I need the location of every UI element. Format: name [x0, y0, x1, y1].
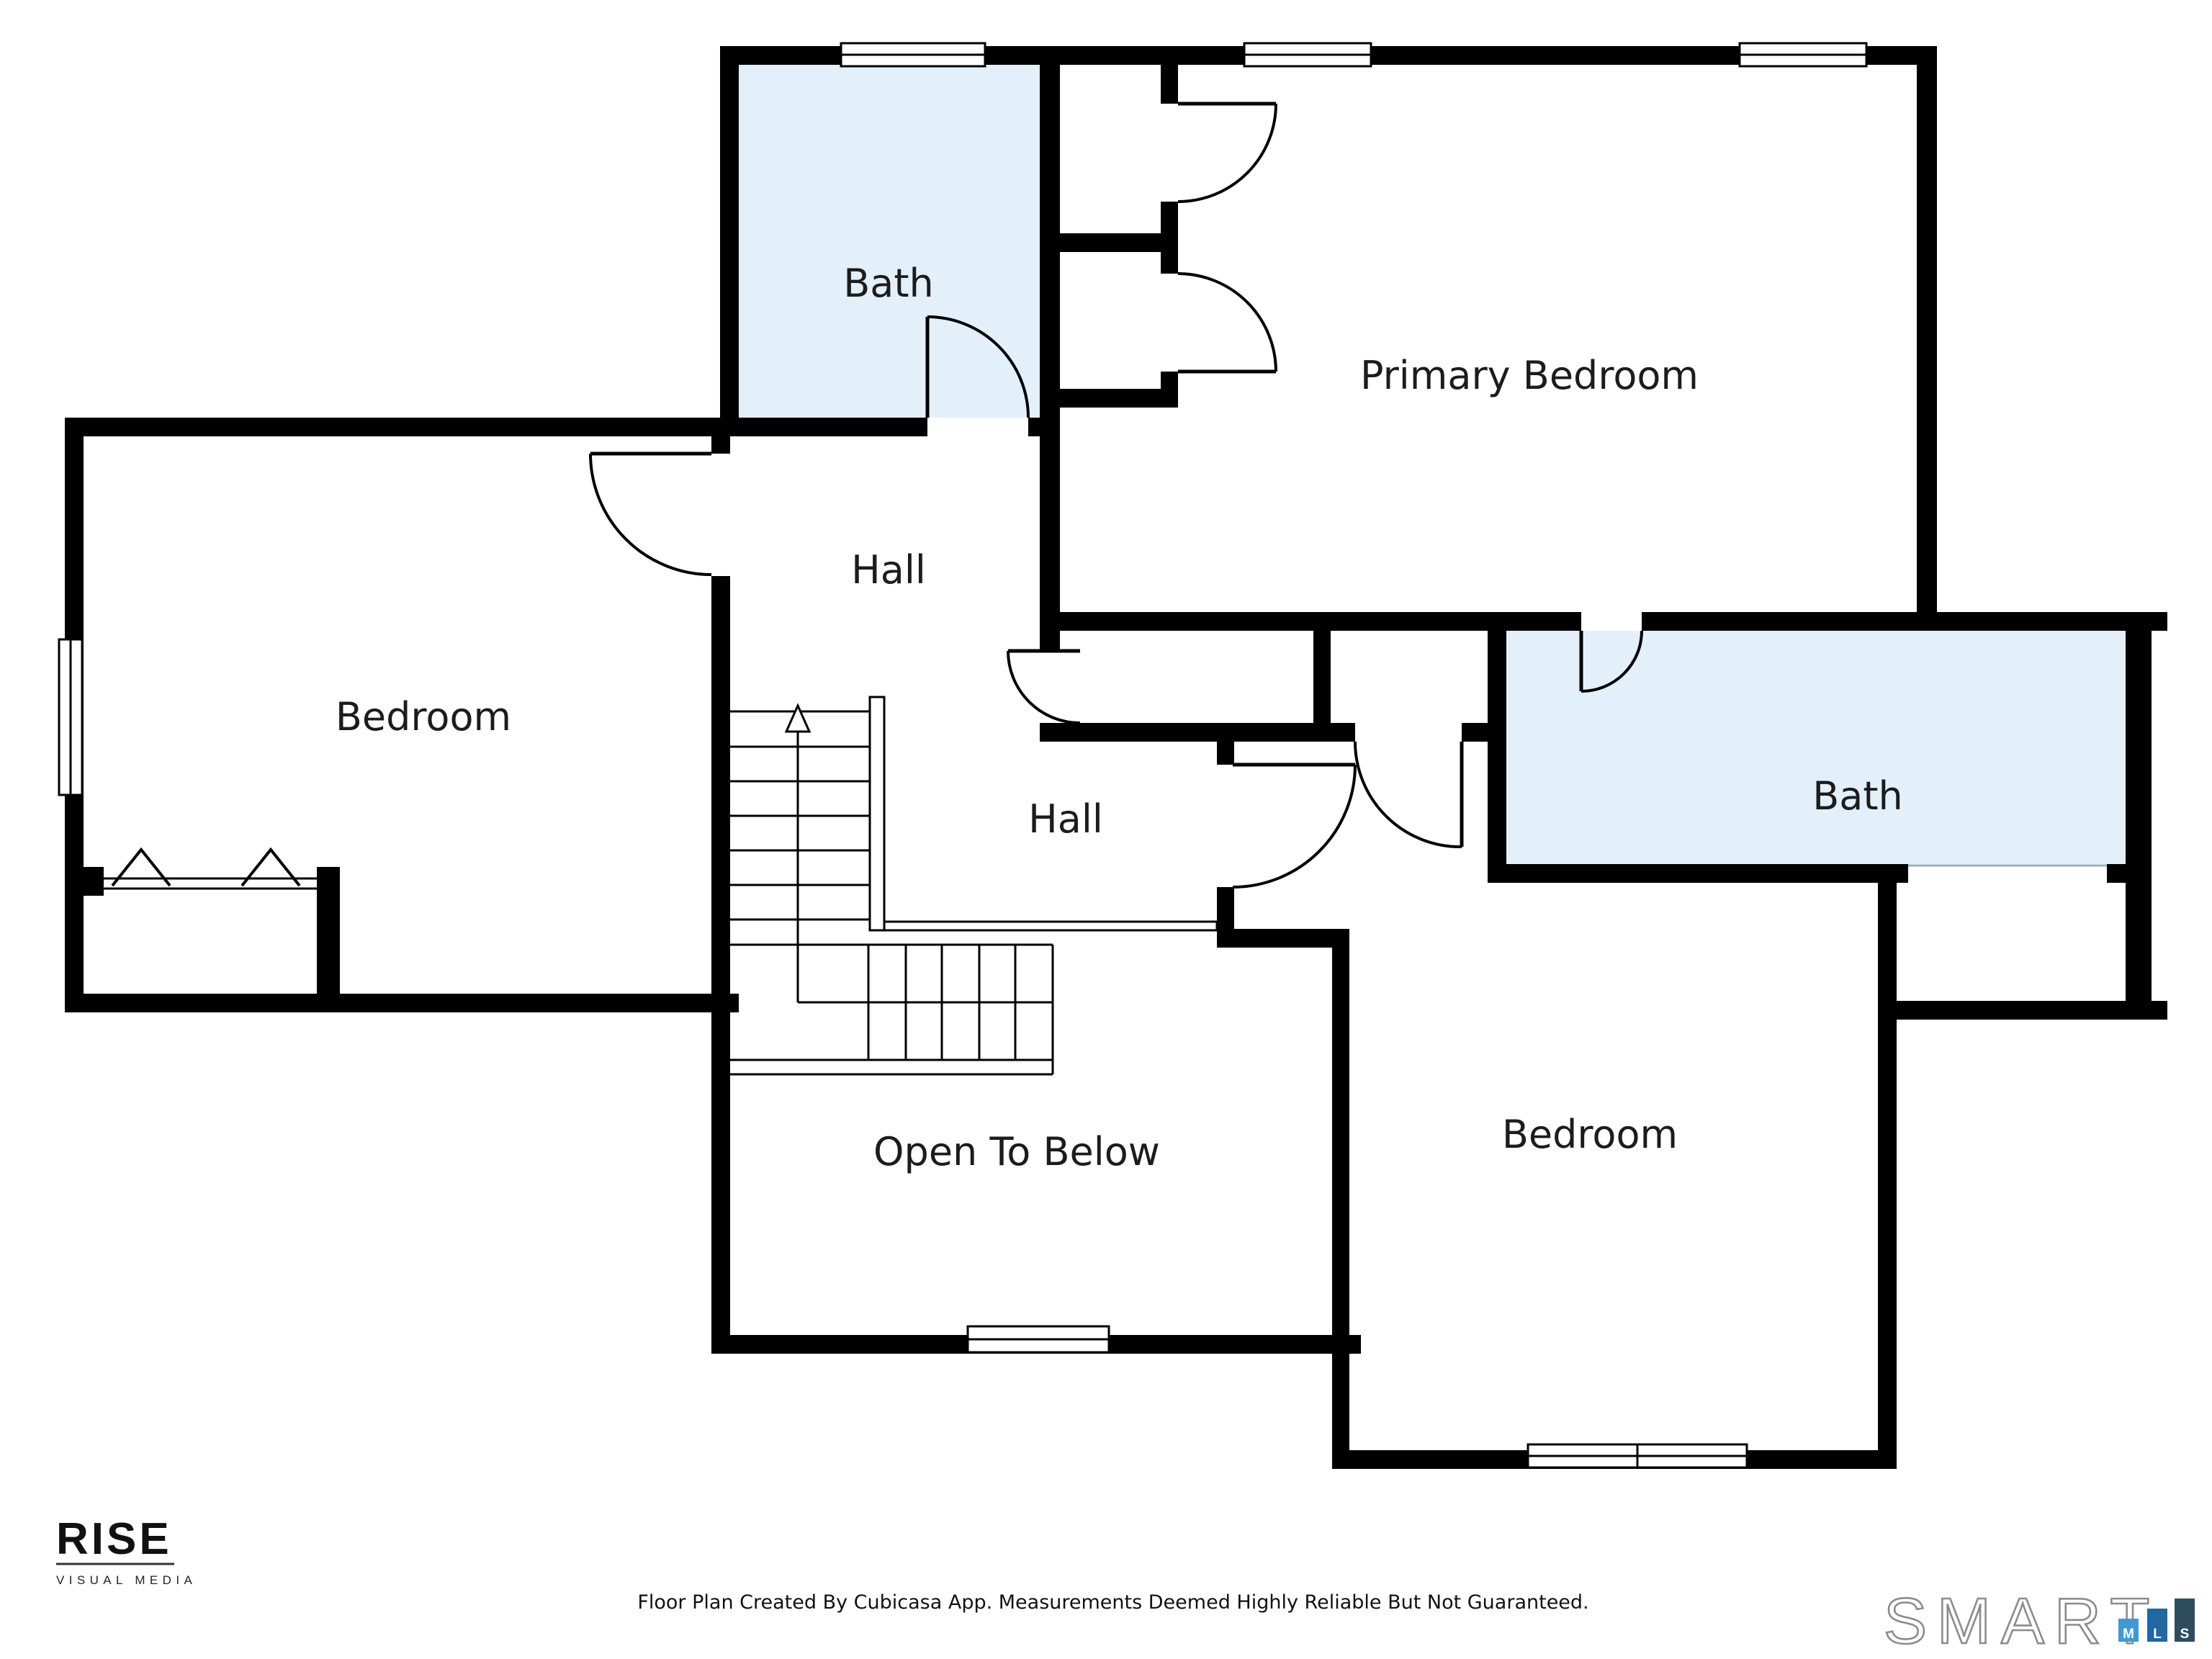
- bath-1-floor: [739, 65, 1040, 418]
- wall-bedroom-left-bottom: [65, 994, 739, 1012]
- window-primary-top-2: [1740, 43, 1866, 66]
- hanger-chevron-icon: [242, 850, 300, 886]
- room-label-open-to-below: Open To Below: [873, 1129, 1160, 1174]
- door-hall-closet: [1008, 651, 1080, 723]
- wall-primary-bottom-b: [1642, 612, 2167, 631]
- wall-bath1-bottom-a: [720, 418, 927, 436]
- stairs-upper-treads: [730, 711, 870, 920]
- window-bedroom-left: [59, 639, 82, 795]
- smartmls-bar-s-letter: S: [2180, 1627, 2190, 1642]
- rise-logo: RISE VISUAL MEDIA: [56, 1514, 197, 1587]
- room-label-bath-2: Bath: [1812, 773, 1903, 819]
- stairs-lower-treads: [727, 945, 1053, 1074]
- room-label-hall-lower: Hall: [1028, 796, 1103, 842]
- wall-bath1-left: [720, 46, 739, 436]
- smartmls-logo: SMART M L S: [1884, 1586, 2195, 1658]
- door-primary-closet-2: [1178, 274, 1276, 372]
- stairs-guard-wall-horizontal: [884, 922, 1217, 930]
- door-bedroom-left: [590, 454, 711, 575]
- wall-bath2-bottom: [1488, 864, 1908, 883]
- wall-bath2-bottom-stub: [2107, 864, 2140, 883]
- smartmls-bar-m-letter: M: [2123, 1627, 2134, 1642]
- wall-closet-col-c: [1161, 372, 1178, 389]
- wall-bath2-left: [1488, 612, 1506, 883]
- wall-closet-col-divider: [1060, 233, 1178, 252]
- wall-closet-row-divider: [1313, 631, 1331, 723]
- stairs-guard-wall-vertical: [870, 697, 884, 930]
- room-label-bedroom-left: Bedroom: [336, 694, 511, 739]
- wall-hall-bottom: [1217, 929, 1349, 948]
- wall-bedroom-left-top: [65, 418, 739, 436]
- wall-closet-col-a: [1161, 65, 1178, 104]
- closet-wall-stub-left: [84, 867, 104, 896]
- bath-2-floor: [1506, 631, 2126, 864]
- wall-hall-bedroom-a: [1217, 742, 1234, 765]
- wall-primary-right: [1917, 46, 1937, 631]
- wall-closet-row-bottom-b: [1462, 723, 1488, 742]
- stairs-up-arrow-icon: [786, 706, 809, 732]
- room-label-hall-upper: Hall: [851, 547, 926, 593]
- door-bedroom-right-closet: [1355, 742, 1462, 847]
- smartmls-bar-l-letter: L: [2153, 1627, 2162, 1642]
- wall-bedroom-right-right: [1878, 864, 1897, 1469]
- wall-hall-bedroom-b: [1217, 887, 1234, 929]
- wall-bedroom-left-right-b: [711, 576, 730, 1354]
- window-primary-top-1: [1244, 43, 1371, 66]
- hanger-chevron-icon: [112, 850, 170, 886]
- floor-plan-page: Bath Primary Bedroom Bedroom Hall Hall B…: [0, 0, 2212, 1659]
- wall-alcove-bottom: [1878, 1001, 2167, 1020]
- rise-logo-tagline: VISUAL MEDIA: [56, 1573, 197, 1587]
- window-bedroom-right-bottom: [1528, 1444, 1747, 1467]
- footer: RISE VISUAL MEDIA Floor Plan Created By …: [56, 1514, 2195, 1658]
- door-primary-closet-1: [1178, 104, 1276, 202]
- wall-bath1-right: [1040, 46, 1060, 651]
- stairs: [727, 697, 1217, 1074]
- wall-closet-row-bottom-a: [1040, 723, 1355, 742]
- wall-closet-col-bottom: [1060, 389, 1178, 408]
- wall-right-outer: [2126, 612, 2152, 1020]
- rise-logo-name: RISE: [56, 1514, 172, 1564]
- room-label-bath-1: Bath: [843, 261, 934, 306]
- closet-rod-line: [84, 878, 320, 889]
- room-label-bedroom-right: Bedroom: [1502, 1112, 1678, 1157]
- room-label-primary-bedroom: Primary Bedroom: [1360, 353, 1699, 398]
- window-bath1-top: [841, 43, 985, 66]
- floor-plan-canvas: Bath Primary Bedroom Bedroom Hall Hall B…: [0, 0, 2212, 1659]
- door-bedroom-right-entry: [1233, 765, 1355, 887]
- closet-wall-stub-right: [317, 867, 340, 994]
- disclaimer-text: Floor Plan Created By Cubicasa App. Meas…: [637, 1591, 1588, 1614]
- wall-otb-bedroom-divider: [1332, 948, 1349, 1469]
- window-otb-bottom: [968, 1326, 1109, 1352]
- closet-symbols: [84, 850, 340, 994]
- smartmls-wordmark: SMART: [1884, 1586, 2159, 1658]
